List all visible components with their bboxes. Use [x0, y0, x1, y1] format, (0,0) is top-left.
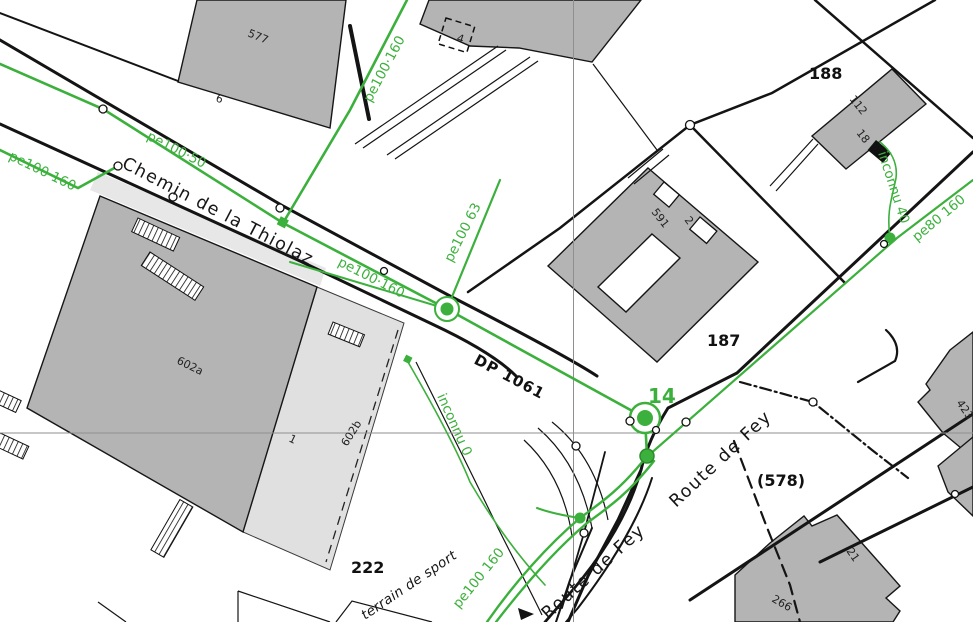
- stairs-icon: [151, 500, 193, 558]
- pipe-label: pe100 160: [450, 545, 508, 612]
- building-top-center: [420, 0, 641, 62]
- building-577: [178, 0, 346, 128]
- building-112: [812, 69, 926, 169]
- connection-square-icon: [403, 355, 412, 364]
- parcel-number-label: (578): [757, 471, 805, 490]
- gis-map-viewport[interactable]: Chemin de la ThiolazRoute de FeyRoute de…: [0, 0, 973, 622]
- pipe-label: pe80 160: [909, 192, 968, 245]
- map-canvas[interactable]: Chemin de la ThiolazRoute de FeyRoute de…: [0, 0, 973, 622]
- parcel-number-label: 187: [707, 331, 740, 350]
- street-label: Route de Fey: [538, 520, 650, 622]
- junction-dot-icon: [575, 513, 586, 524]
- pipe-label: inconnu 40: [874, 149, 912, 225]
- building-right-edge-lower: [938, 437, 973, 516]
- stairs-icon: [0, 388, 21, 412]
- building-423: [918, 332, 973, 458]
- parcel-number-label: 222: [351, 558, 384, 577]
- stairs-icon: [0, 432, 29, 459]
- junction-number-label: 14: [648, 384, 676, 408]
- valve-icon: [435, 297, 459, 321]
- flow-arrow-icon: [518, 608, 534, 620]
- junction-dot-icon: [640, 449, 654, 463]
- parcel-number-label: 188: [809, 64, 842, 83]
- pipe-label: pe100·50: [144, 128, 208, 171]
- building-21-266: [735, 515, 900, 622]
